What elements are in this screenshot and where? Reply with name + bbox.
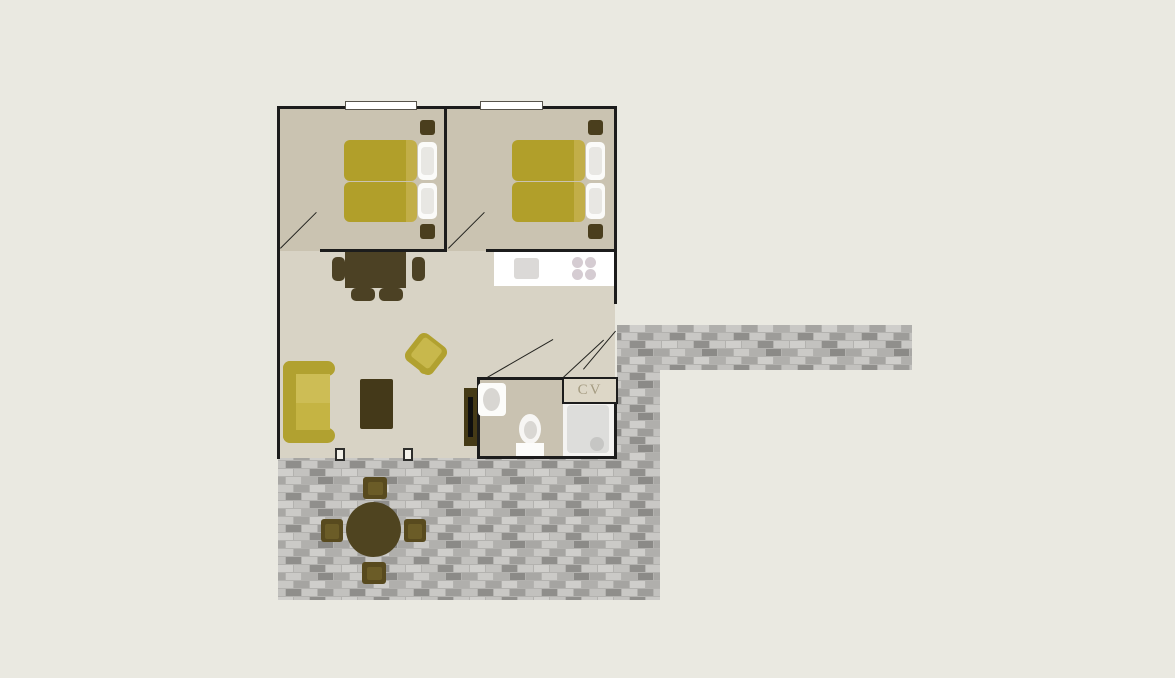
bed-duvet <box>512 140 585 181</box>
terrace-chair-seat <box>367 567 382 580</box>
wall-top-mid <box>416 106 481 109</box>
dining-chair <box>332 257 345 281</box>
bed-duvet <box>344 182 417 222</box>
stove-burner <box>572 269 583 280</box>
stove-burner <box>572 257 583 268</box>
coffee-table <box>360 379 393 429</box>
shower-drain <box>590 437 604 451</box>
toilet-tank <box>516 443 544 456</box>
bed-duvet <box>344 140 417 181</box>
wall-left <box>277 106 280 459</box>
wall-top-left <box>277 106 346 109</box>
bedroom-1-window <box>345 101 417 110</box>
terrace-door-post <box>403 448 413 461</box>
washbasin-bowl <box>483 388 500 411</box>
kitchen-counter <box>494 251 615 286</box>
bed-duvet <box>512 182 585 222</box>
side-path-paving <box>617 370 660 458</box>
tv-screen <box>468 397 473 437</box>
dining-chair <box>379 288 403 301</box>
nightstand <box>420 224 435 239</box>
toilet-bowl-inner <box>524 421 537 439</box>
cv-closet: CV <box>562 377 618 404</box>
nightstand <box>588 120 603 135</box>
floor-plan-page: { "plan": { "type": "holiday-home-floor-… <box>0 0 1175 678</box>
bedroom-2-window <box>480 101 543 110</box>
sofa-cushion <box>296 403 330 430</box>
wall-top-right <box>542 106 617 109</box>
wall-bedroom-divider <box>444 106 447 252</box>
wall-bedrooms-south-left <box>320 249 446 252</box>
washbasin <box>478 383 506 416</box>
stove-burner <box>585 257 596 268</box>
kitchen-sink <box>514 258 539 279</box>
wall-bedrooms-south-right <box>486 249 617 252</box>
nightstand <box>420 120 435 135</box>
terrace-chair-seat <box>368 482 383 495</box>
tv-cabinet <box>464 388 477 446</box>
terrace-table <box>346 502 401 557</box>
bed-pillow-inner <box>421 188 434 214</box>
wall-right-upper <box>614 106 617 304</box>
terrace-chair-seat <box>408 524 422 539</box>
dining-chair <box>351 288 375 301</box>
walkway-paving <box>617 325 912 370</box>
cv-closet-label: CV <box>578 382 603 399</box>
sofa-cushion <box>296 374 330 403</box>
bed-pillow-inner <box>589 147 602 175</box>
stove-burner <box>585 269 596 280</box>
bed-pillow-inner <box>421 147 434 175</box>
terrace-door-post <box>335 448 345 461</box>
dining-chair <box>412 257 425 281</box>
nightstand <box>588 224 603 239</box>
bed-pillow-inner <box>589 188 602 214</box>
terrace-chair-seat <box>325 524 339 539</box>
sofa-back <box>283 361 297 443</box>
dining-table <box>345 252 406 288</box>
